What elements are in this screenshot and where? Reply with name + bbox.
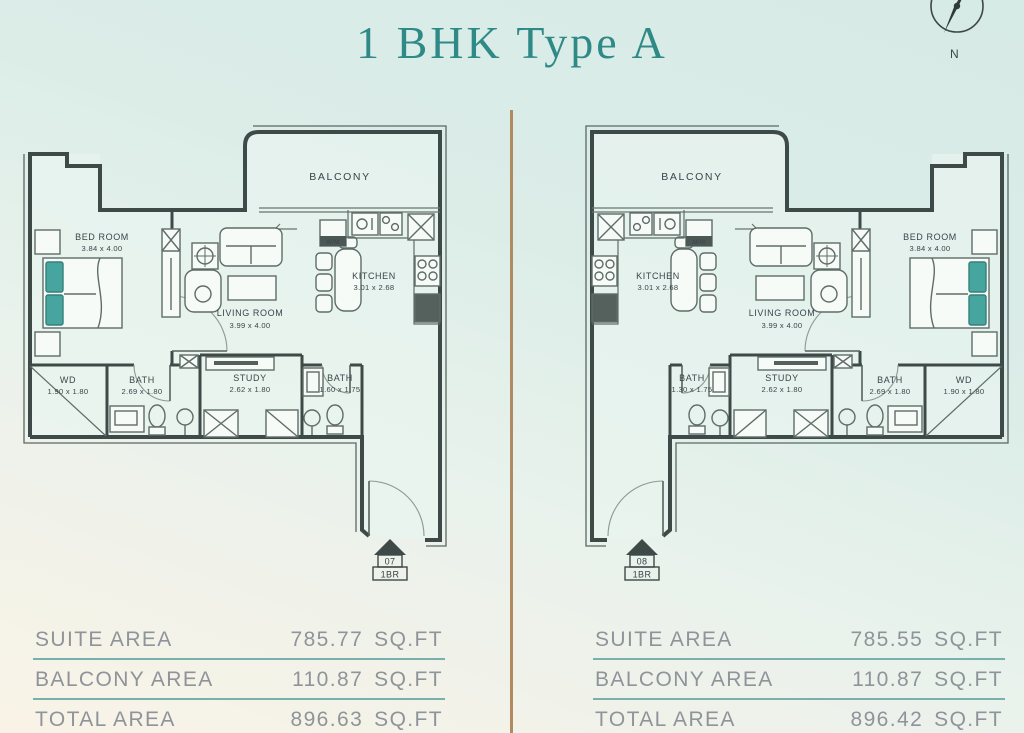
unit-type: 1BR	[633, 570, 652, 580]
wd-label: WD	[956, 375, 972, 385]
study-label: STUDY	[765, 373, 799, 383]
balcony-area-row: BALCONY AREA 110.87 SQ.FT	[33, 660, 445, 700]
bath-main-dims: 2.69 x 1.80	[122, 387, 163, 396]
total-area-label: TOTAL AREA	[595, 708, 736, 732]
bath-guest-label: BATH	[327, 373, 353, 383]
bedroom-label: BED ROOM	[75, 232, 129, 242]
unit-number: 07	[385, 557, 396, 567]
kitchen-label: KITCHEN	[636, 271, 680, 281]
study-dims: 2.62 x 1.80	[230, 385, 271, 394]
plan-geometry	[24, 126, 446, 546]
total-area-label: TOTAL AREA	[35, 708, 176, 732]
bedroom-dims: 3.84 x 4.00	[82, 244, 123, 253]
study-dims: 2.62 x 1.80	[762, 385, 803, 394]
suite-area-unit: SQ.FT	[934, 628, 1003, 652]
suite-area-label: SUITE AREA	[595, 628, 733, 652]
floor-plan-page: 1 BHK Type A N	[0, 0, 1024, 733]
bath-main-label: BATH	[877, 375, 903, 385]
unit-entry-marker: 08 1BR	[625, 539, 659, 580]
kitchen-dims: 3.01 x 2.68	[354, 283, 395, 292]
north-compass-icon: N	[924, 0, 990, 68]
suite-area-unit: SQ.FT	[374, 628, 443, 652]
floor-plan-left: BALCONY BED ROOM 3.84 x 4.00 LIVING ROOM…	[22, 118, 462, 588]
bath-guest-dims: 1.60 x 1.75	[320, 385, 361, 394]
washer-label: M/W	[692, 239, 706, 246]
living-room-label: LIVING ROOM	[217, 308, 284, 318]
balcony-area-unit: SQ.FT	[374, 668, 443, 692]
unit-type: 1BR	[381, 570, 400, 580]
suite-area-value: 785.77	[291, 628, 364, 652]
suite-area-row: SUITE AREA 785.55 SQ.FT	[593, 620, 1005, 660]
suite-area-row: SUITE AREA 785.77 SQ.FT	[33, 620, 445, 660]
kitchen-label: KITCHEN	[352, 271, 396, 281]
area-table-right: SUITE AREA 785.55 SQ.FT BALCONY AREA 110…	[593, 620, 1005, 733]
compass-north-label: N	[950, 47, 959, 61]
bath-main-dims: 2.69 x 1.80	[870, 387, 911, 396]
study-label: STUDY	[233, 373, 267, 383]
washer-label: W/M	[326, 239, 340, 246]
floor-plan-right: BALCONY BED ROOM 3.84 x 4.00 LIVING ROOM…	[570, 118, 1010, 588]
total-area-row: TOTAL AREA 896.42 SQ.FT	[593, 700, 1005, 733]
balcony-label: BALCONY	[309, 171, 370, 183]
bath-guest-label: BATH	[679, 373, 705, 383]
balcony-area-value: 110.87	[292, 668, 363, 692]
suite-area-label: SUITE AREA	[35, 628, 173, 652]
suite-area-value: 785.55	[851, 628, 924, 652]
living-room-dims: 3.99 x 4.00	[762, 321, 803, 330]
center-divider	[510, 110, 513, 733]
balcony-area-label: BALCONY AREA	[35, 668, 214, 692]
bedroom-dims: 3.84 x 4.00	[910, 244, 951, 253]
total-area-value: 896.42	[851, 708, 924, 732]
wd-dims: 1.90 x 1.80	[944, 387, 985, 396]
bath-guest-dims: 1.30 x 1.75	[672, 385, 713, 394]
balcony-area-unit: SQ.FT	[934, 668, 1003, 692]
page-title: 1 BHK Type A	[0, 16, 1024, 69]
unit-number: 08	[637, 557, 648, 567]
balcony-area-label: BALCONY AREA	[595, 668, 774, 692]
balcony-area-row: BALCONY AREA 110.87 SQ.FT	[593, 660, 1005, 700]
total-area-value: 896.63	[291, 708, 364, 732]
total-area-unit: SQ.FT	[374, 708, 443, 732]
bedroom-label: BED ROOM	[903, 232, 957, 242]
wd-dims: 1.90 x 1.80	[48, 387, 89, 396]
bath-main-label: BATH	[129, 375, 155, 385]
living-room-dims: 3.99 x 4.00	[230, 321, 271, 330]
area-table-left: SUITE AREA 785.77 SQ.FT BALCONY AREA 110…	[33, 620, 445, 733]
balcony-area-value: 110.87	[852, 668, 923, 692]
total-area-unit: SQ.FT	[934, 708, 1003, 732]
kitchen-dims: 3.01 x 2.68	[638, 283, 679, 292]
unit-entry-marker: 07 1BR	[373, 539, 407, 580]
living-room-label: LIVING ROOM	[749, 308, 816, 318]
plan-geometry-mirrored	[586, 126, 1008, 546]
total-area-row: TOTAL AREA 896.63 SQ.FT	[33, 700, 445, 733]
wd-label: WD	[60, 375, 76, 385]
balcony-label: BALCONY	[661, 171, 722, 183]
